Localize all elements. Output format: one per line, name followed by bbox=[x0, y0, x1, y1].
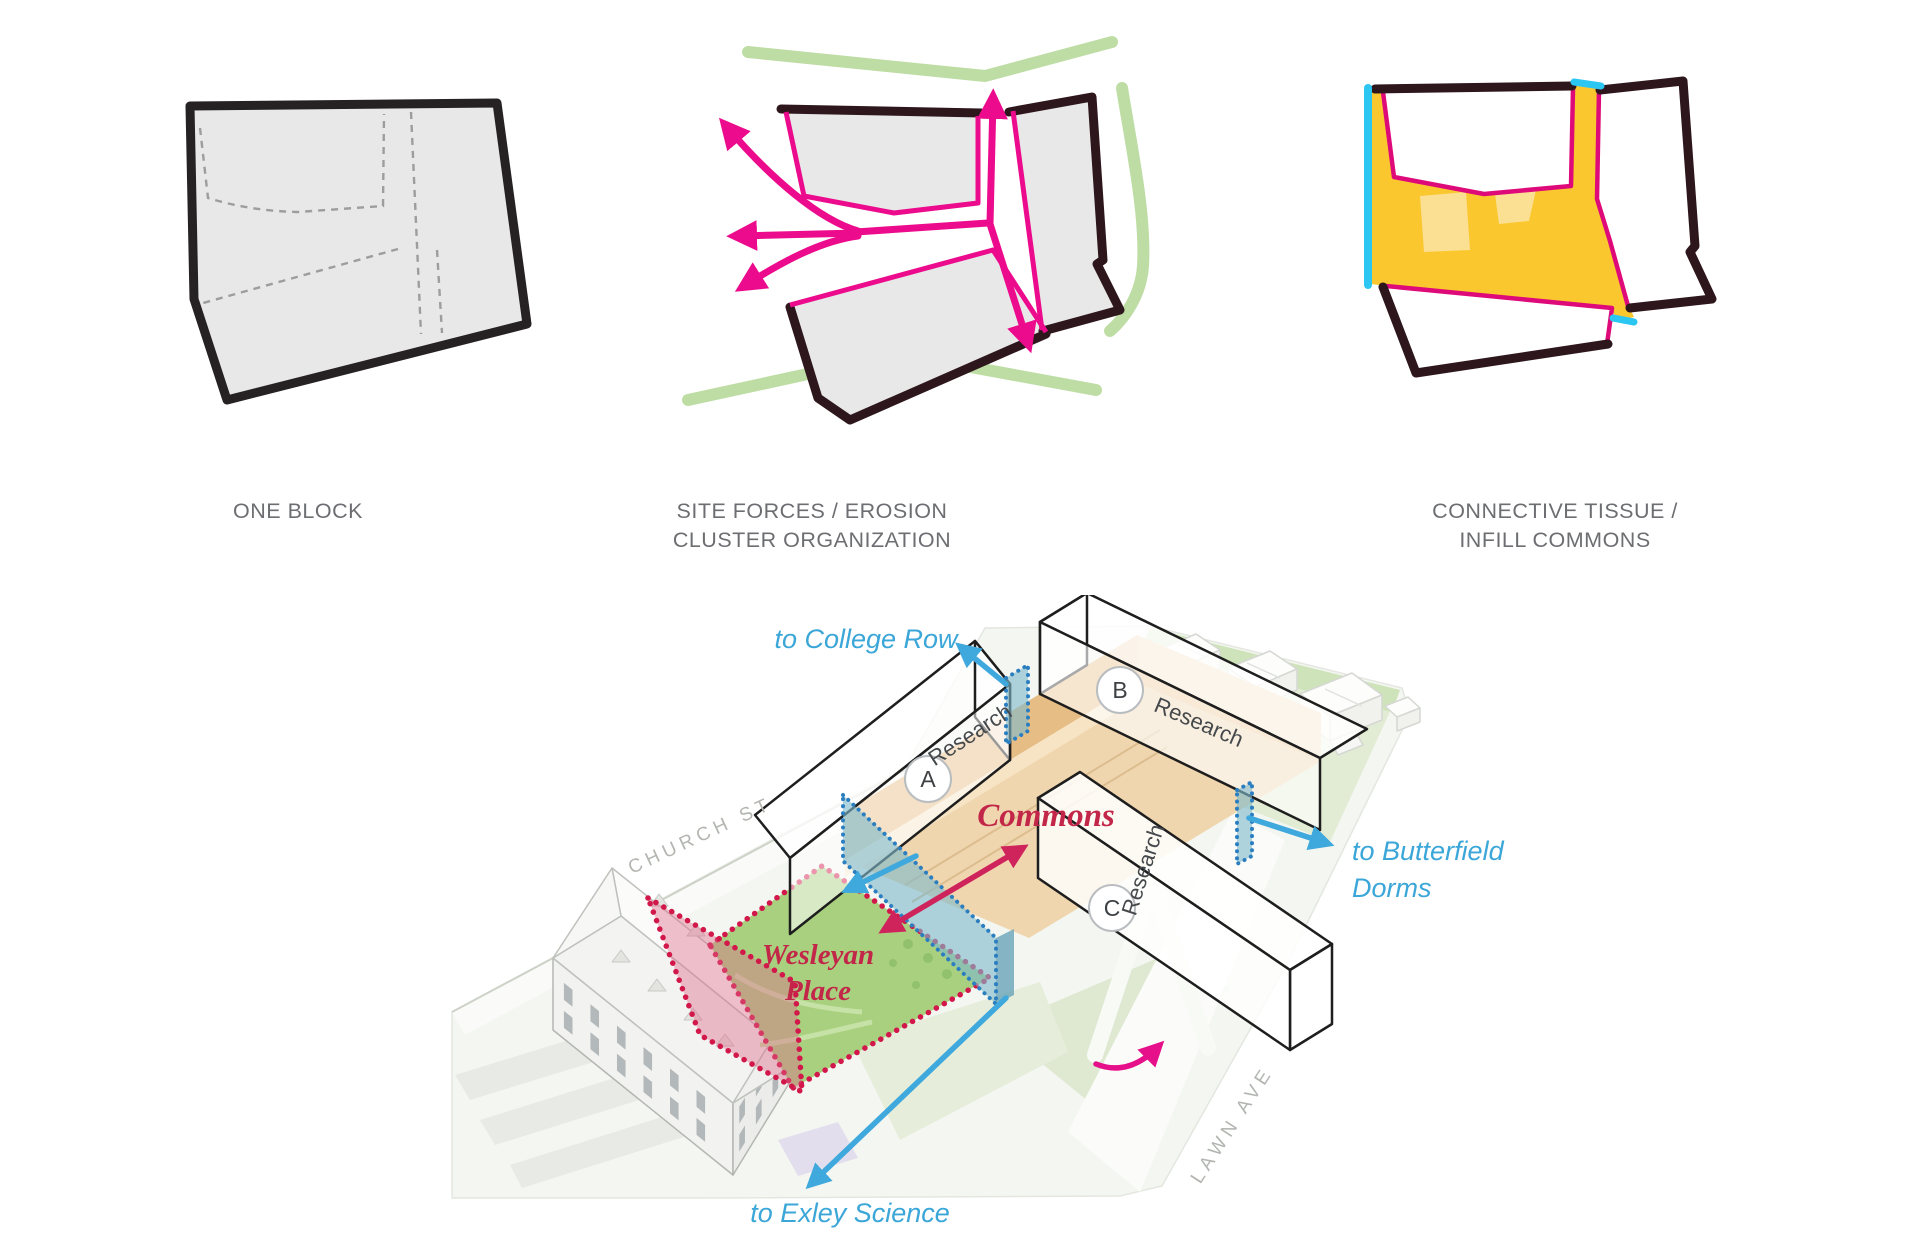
force-arrow-downleft bbox=[744, 236, 858, 286]
axon-site-diagram: A B C Research Research Research to Coll… bbox=[420, 595, 1600, 1240]
commons-label: Commons bbox=[977, 798, 1115, 834]
one-block-diagram bbox=[140, 80, 560, 420]
caption-site-forces-line2: CLUSTER ORGANIZATION bbox=[592, 526, 1032, 555]
college-row-portal bbox=[1006, 665, 1028, 744]
to-butterfield-label-line2: Dorms bbox=[1352, 873, 1432, 903]
caption-connective: CONNECTIVE TISSUE / INFILL COMMONS bbox=[1335, 497, 1775, 555]
to-exley-science-label: to Exley Science bbox=[750, 1198, 950, 1228]
connective-tissue-diagram bbox=[1350, 50, 1730, 390]
to-college-row-label: to College Row bbox=[774, 624, 959, 654]
building-b-letter: B bbox=[1112, 677, 1127, 703]
concept-diagram-sheet: ONE BLOCK SITE FORCES / EROSION CLUSTER … bbox=[0, 0, 1920, 1240]
caption-site-forces-line1: SITE FORCES / EROSION bbox=[592, 497, 1032, 526]
caption-one-block-text: ONE BLOCK bbox=[233, 499, 363, 523]
eroded-blocks bbox=[781, 97, 1120, 420]
site-forces-diagram bbox=[580, 15, 1160, 435]
caption-site-forces: SITE FORCES / EROSION CLUSTER ORGANIZATI… bbox=[592, 497, 1032, 555]
caption-one-block: ONE BLOCK bbox=[118, 497, 478, 526]
force-connector-line bbox=[856, 223, 988, 232]
wesleyan-place-label-line2: Place bbox=[784, 975, 851, 1007]
butterfield-portal bbox=[1237, 782, 1252, 864]
caption-connective-line1: CONNECTIVE TISSUE / bbox=[1335, 497, 1775, 526]
building-a-letter: A bbox=[920, 766, 936, 792]
wesleyan-place-label-line1: Wesleyan bbox=[762, 939, 874, 971]
caption-connective-line2: INFILL COMMONS bbox=[1335, 526, 1775, 555]
to-butterfield-label-line1: to Butterfield bbox=[1352, 836, 1505, 866]
city-block-shape bbox=[190, 103, 527, 400]
force-arrow-left bbox=[737, 233, 858, 236]
